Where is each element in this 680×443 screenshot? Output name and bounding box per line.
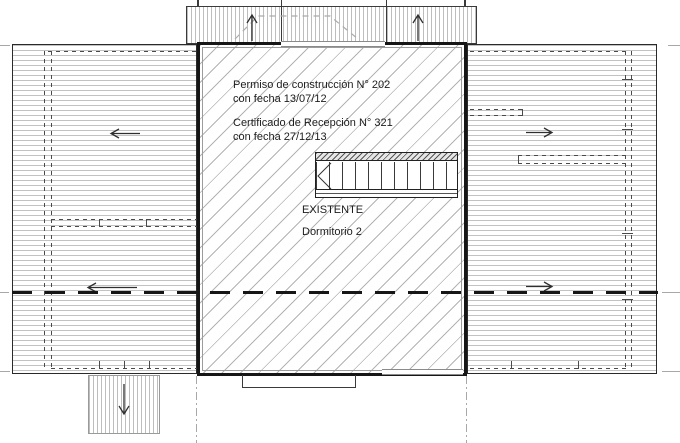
hidden-beam-line xyxy=(518,155,626,156)
top-wall-opening xyxy=(281,41,385,47)
beam-connector xyxy=(522,109,523,116)
slope-arrow-up-icon xyxy=(411,11,425,41)
beam-connector xyxy=(518,155,519,164)
eave-connector xyxy=(149,361,150,369)
stair-start-mark xyxy=(317,162,332,190)
hidden-beam-line xyxy=(51,219,197,220)
permit-note-line1: Permiso de construcción N° 202 xyxy=(233,78,390,92)
hidden-edge-line xyxy=(625,51,626,368)
axis-tick xyxy=(662,292,680,293)
edge-connector xyxy=(622,299,633,300)
certificate-note-line1: Certificado de Recepción N° 321 xyxy=(233,116,393,130)
axis-tick xyxy=(668,45,680,46)
edge-connector xyxy=(622,233,633,234)
bottom-wall-opening xyxy=(382,369,463,375)
left-roof-plane xyxy=(12,44,197,374)
permit-note: Permiso de construcción N° 202 con fecha… xyxy=(233,78,390,106)
grid-axis-vertical xyxy=(196,376,197,443)
hidden-edge-line xyxy=(631,51,632,368)
grid-axis-vertical xyxy=(466,376,467,443)
stair-bottom-line xyxy=(316,193,457,194)
reception-certificate-note: Certificado de Recepción N° 321 con fech… xyxy=(233,116,393,144)
slope-arrow-left-icon xyxy=(107,128,141,139)
hidden-ridge-outline xyxy=(186,6,477,44)
edge-connector xyxy=(622,79,633,80)
floor-plan-canvas: Permiso de construcción N° 202 con fecha… xyxy=(0,0,680,443)
beam-connector xyxy=(146,219,147,227)
permit-note-line2: con fecha 13/07/12 xyxy=(233,92,390,106)
hidden-edge-line xyxy=(51,51,52,368)
hidden-eave-line xyxy=(48,51,196,52)
right-roof-plane xyxy=(467,44,657,374)
axis-tick xyxy=(0,371,10,372)
staircase xyxy=(315,152,458,198)
hidden-beam-line xyxy=(51,226,197,227)
existing-status-label: EXISTENTE xyxy=(302,204,363,216)
axis-tick xyxy=(662,371,680,372)
eave-connector xyxy=(578,361,579,369)
slope-arrow-right-icon xyxy=(526,127,556,138)
section-axis-line xyxy=(12,291,658,294)
hidden-beam-line xyxy=(470,115,523,116)
stair-top-band xyxy=(316,153,457,161)
eave-connector xyxy=(99,361,100,369)
beam-connector xyxy=(99,219,100,227)
hidden-eave-line xyxy=(470,51,626,52)
hidden-beam-line xyxy=(470,109,523,110)
entry-step-outline xyxy=(242,375,356,388)
certificate-note-line2: con fecha 27/12/13 xyxy=(233,130,393,144)
axis-tick xyxy=(0,292,9,293)
eave-connector xyxy=(124,361,125,369)
stair-treads xyxy=(316,162,457,190)
slope-arrow-up-icon xyxy=(245,11,259,41)
hidden-edge-line xyxy=(44,51,45,368)
room-name-label: Dormitorio 2 xyxy=(302,226,362,238)
axis-tick xyxy=(0,45,10,46)
edge-connector xyxy=(622,129,633,130)
hidden-beam-line xyxy=(518,163,626,164)
eave-connector xyxy=(511,361,512,369)
hidden-eave-line xyxy=(470,368,626,369)
slope-arrow-down-icon xyxy=(117,384,131,418)
